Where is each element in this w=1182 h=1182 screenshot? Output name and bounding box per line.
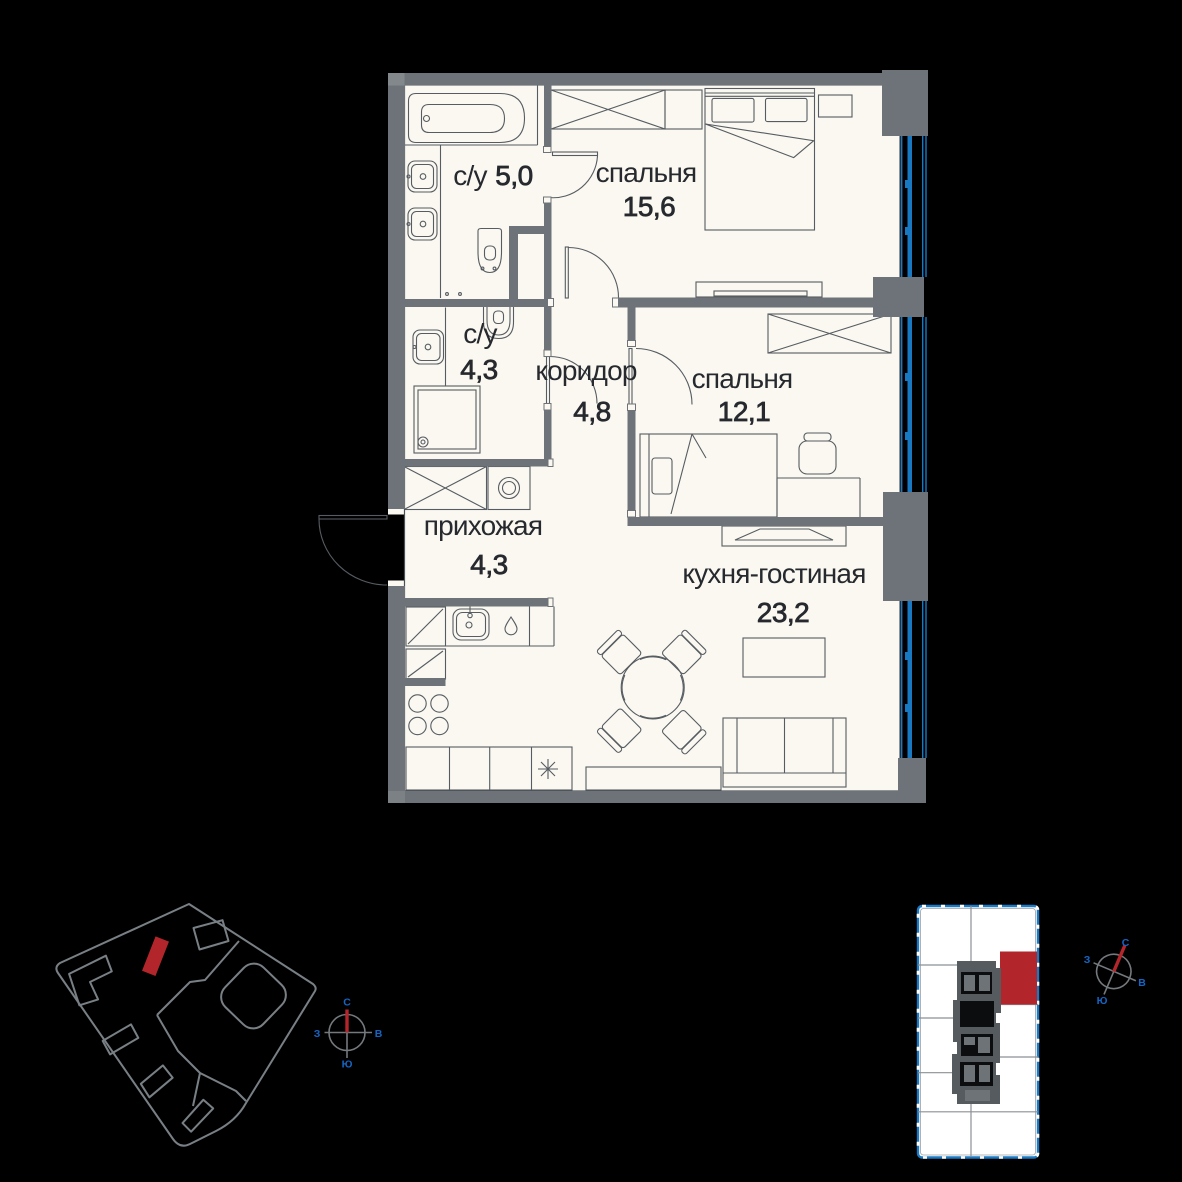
svg-text:спальня: спальня bbox=[692, 363, 793, 394]
svg-text:23,2: 23,2 bbox=[757, 597, 810, 628]
svg-text:З: З bbox=[314, 1028, 321, 1040]
svg-text:кухня-гостиная: кухня-гостиная bbox=[682, 558, 865, 589]
svg-text:коридор: коридор bbox=[535, 355, 636, 386]
svg-text:15,6: 15,6 bbox=[623, 191, 676, 222]
svg-text:4,8: 4,8 bbox=[573, 396, 610, 427]
svg-text:12,1: 12,1 bbox=[718, 396, 771, 427]
svg-text:С: С bbox=[343, 997, 351, 1009]
svg-text:с/у: с/у bbox=[453, 160, 487, 191]
svg-text:4,3: 4,3 bbox=[470, 549, 507, 580]
svg-text:С: С bbox=[1122, 937, 1130, 949]
svg-text:В: В bbox=[375, 1028, 383, 1040]
svg-text:с/у: с/у bbox=[463, 318, 497, 349]
svg-text:Ю: Ю bbox=[1097, 995, 1108, 1007]
svg-text:З: З bbox=[1084, 954, 1091, 966]
svg-text:4,3: 4,3 bbox=[460, 354, 497, 385]
svg-text:5,0: 5,0 bbox=[495, 160, 532, 191]
svg-text:спальня: спальня bbox=[596, 157, 697, 188]
svg-text:В: В bbox=[1138, 977, 1146, 989]
svg-text:Ю: Ю bbox=[342, 1059, 353, 1071]
svg-text:прихожая: прихожая bbox=[424, 510, 542, 541]
